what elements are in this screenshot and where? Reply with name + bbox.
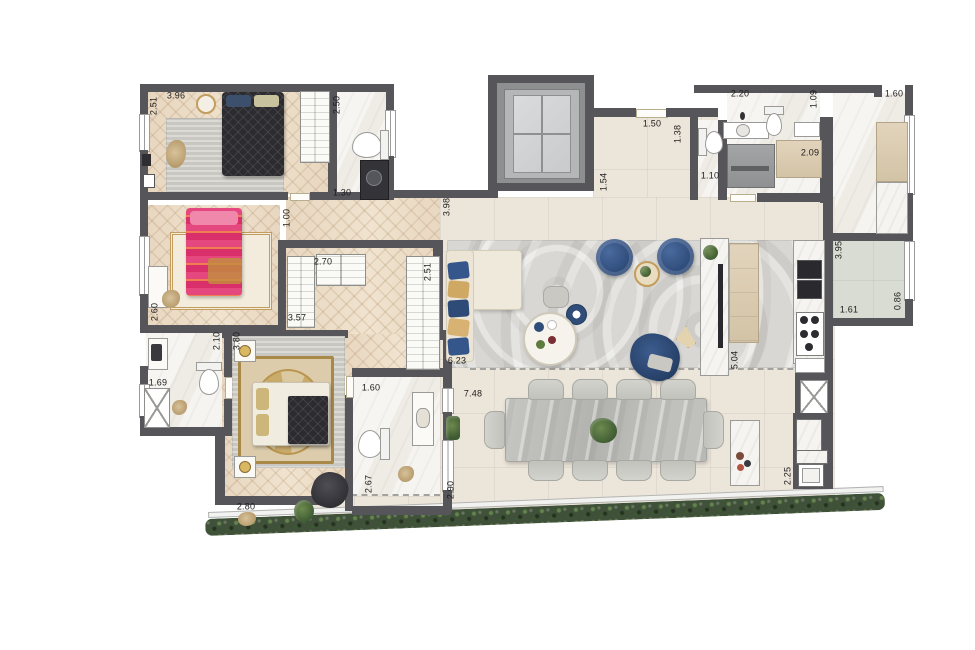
dim-closet-right: 2.51 xyxy=(424,263,433,281)
wall xyxy=(690,117,698,200)
dim-bed1-width: 3.96 xyxy=(167,92,185,101)
wall xyxy=(352,506,451,515)
master-toilet-tank xyxy=(380,428,390,460)
wall xyxy=(874,85,882,97)
bedroom1-wardrobe xyxy=(300,91,330,163)
dim-sideterrace-width: 1.61 xyxy=(840,306,858,315)
burner xyxy=(800,316,808,324)
dim-bath2-width: 1.69 xyxy=(149,379,167,388)
oven xyxy=(797,260,822,279)
wall xyxy=(905,85,913,115)
grill-counter xyxy=(796,419,822,453)
burner xyxy=(800,330,808,338)
dim-laundry-inner: 2.09 xyxy=(801,149,819,158)
dim-hall-width: 1.00 xyxy=(283,209,292,227)
bathroom2-shower xyxy=(144,388,170,428)
wall xyxy=(278,240,286,333)
sofa-pillow-tan xyxy=(447,280,469,299)
dim-terrace-width: 7.48 xyxy=(464,390,482,399)
tv xyxy=(718,264,723,348)
wall xyxy=(140,427,232,436)
elevator-wall xyxy=(585,83,594,191)
pantry-fridge xyxy=(876,122,908,182)
dim-master-width: 2.80 xyxy=(237,503,255,512)
wall xyxy=(666,108,718,117)
wall xyxy=(594,108,636,117)
laundry-counter xyxy=(776,140,822,178)
tray-plant xyxy=(640,266,651,277)
dim-wc-depth: 1.38 xyxy=(674,125,683,143)
dining-chair xyxy=(528,460,564,481)
nightstand-lamp xyxy=(239,461,251,473)
laundry-sink-bowl xyxy=(736,124,750,137)
dim-pantry-width: 1.60 xyxy=(885,90,903,99)
dining-chair xyxy=(616,460,652,481)
kitchen-sink-cabinet xyxy=(795,358,825,373)
laundry-door xyxy=(730,194,756,202)
master-bathroom-door xyxy=(346,376,354,398)
dining-chair xyxy=(660,460,696,481)
washing-machine-door xyxy=(731,166,769,171)
master-pillow xyxy=(256,388,269,410)
entry-door xyxy=(636,109,668,118)
bathroom2-sink xyxy=(151,344,162,361)
dim-entry-depth: 1.54 xyxy=(600,173,609,191)
side-terrace-window xyxy=(904,241,915,301)
coffee-set xyxy=(744,460,751,467)
burner xyxy=(811,316,819,324)
wall xyxy=(833,318,913,326)
dim-living-width: 6.23 xyxy=(448,357,466,366)
wall xyxy=(278,240,440,248)
bedroom1-pillow xyxy=(226,95,251,107)
table-decor xyxy=(534,322,544,332)
wall xyxy=(140,200,148,236)
dining-chair xyxy=(703,411,724,449)
bathroom1-toilet xyxy=(352,132,382,158)
grill-sink xyxy=(798,464,824,487)
master-bath-window xyxy=(442,388,454,414)
dim-closet-length: 3.57 xyxy=(288,314,306,323)
wall xyxy=(140,366,148,384)
pantry-counter xyxy=(876,182,908,234)
console-plant xyxy=(703,245,718,260)
living-wall-plant xyxy=(446,416,460,440)
sofa-pillow-blue xyxy=(447,337,469,356)
dim-bed2-width: 2.60 xyxy=(151,303,160,321)
dim-grill-depth: 2.25 xyxy=(784,467,793,485)
wall xyxy=(833,233,913,241)
wall xyxy=(757,193,823,202)
dim-sideterrace-depth: 0.86 xyxy=(894,292,903,310)
floor-plan: 3.962.512.501.301.002.702.513.572.602.10… xyxy=(0,0,975,650)
wall xyxy=(215,436,225,500)
burner xyxy=(811,330,819,338)
lounge-pouf xyxy=(657,238,694,275)
elevator-wall xyxy=(488,75,594,83)
master-bed-throw xyxy=(288,396,328,444)
wall-switch xyxy=(143,174,155,188)
dining-chair xyxy=(484,411,505,449)
hall-floor xyxy=(286,197,443,242)
bedroom1-window xyxy=(139,114,150,152)
dining-chair xyxy=(528,379,564,400)
sofa-pillow-blue xyxy=(447,261,470,280)
oven xyxy=(797,280,822,299)
wall-ac-unit xyxy=(142,154,151,166)
bedroom2-pillow xyxy=(190,211,238,225)
dim-bath2-depth: 2.10 xyxy=(213,332,222,350)
coffee-set xyxy=(736,452,744,460)
table-decor xyxy=(536,340,545,349)
burner xyxy=(805,343,813,351)
table-decor xyxy=(547,320,557,330)
bedroom1-nightstand xyxy=(196,94,216,114)
bedroom2-door xyxy=(290,193,310,201)
service-shaft xyxy=(800,380,828,414)
table-decor xyxy=(548,336,556,344)
dim-master-depth: 3.80 xyxy=(233,332,242,350)
gray-pouf xyxy=(543,286,569,308)
master-plant xyxy=(294,500,314,522)
bar-island xyxy=(730,420,760,486)
bathroom2-toilet xyxy=(199,369,219,395)
dining-chair xyxy=(572,379,608,400)
dim-bath3-width: 1.60 xyxy=(362,384,380,393)
laundry-wall-sink xyxy=(794,122,820,137)
dim-living-depth: 3.98 xyxy=(443,198,452,216)
master-toilet xyxy=(358,430,382,458)
bedroom2-throw xyxy=(208,258,242,284)
elevator-wall xyxy=(488,83,497,191)
wc-toilet xyxy=(705,131,723,154)
dim-kitchen-depth: 3.95 xyxy=(835,241,844,259)
laundry-faucet xyxy=(740,112,745,120)
bedroom1-pillow xyxy=(254,95,279,107)
master-sink xyxy=(416,408,430,428)
dim-bath3-depth: 2.67 xyxy=(365,475,374,493)
dim-laundry-width: 2.20 xyxy=(731,90,749,99)
wall xyxy=(386,190,498,198)
master-pillow xyxy=(256,414,269,436)
dim-master-terrace: 2.90 xyxy=(447,481,456,499)
sofa-pillow-tan xyxy=(447,318,470,337)
dim-closet-top: 2.70 xyxy=(314,258,332,267)
grill-counter-ext xyxy=(796,450,828,464)
coffee-set xyxy=(737,464,744,471)
dim-laundry-depth: 1.09 xyxy=(810,90,819,108)
dining-chair xyxy=(660,379,696,400)
dim-wc-width: 1.10 xyxy=(701,172,719,181)
wall xyxy=(386,88,394,110)
laundry-toilet xyxy=(766,113,782,136)
dim-bath1-width: 1.30 xyxy=(333,189,351,198)
bathroom1-sink xyxy=(366,170,382,186)
dim-bath1-height: 2.50 xyxy=(333,96,342,114)
elevator-door-panel xyxy=(513,95,571,173)
bathroom1-toilet-tank xyxy=(380,130,389,160)
wall xyxy=(140,192,288,200)
dining-chair xyxy=(572,460,608,481)
lounge-pouf xyxy=(596,239,633,276)
elevator-wall xyxy=(488,183,594,191)
wall xyxy=(224,399,232,429)
sofa-pillow-blue xyxy=(447,299,469,317)
wall xyxy=(694,85,880,93)
dining-chair xyxy=(616,379,652,400)
kitchen-buffet xyxy=(729,243,759,343)
dim-entry-width: 1.50 xyxy=(643,120,661,129)
dim-kitchen-run: 5.04 xyxy=(731,351,740,369)
wall xyxy=(140,92,148,114)
dim-bed1-depth: 2.51 xyxy=(150,97,159,115)
dining-centerpiece xyxy=(590,418,617,443)
